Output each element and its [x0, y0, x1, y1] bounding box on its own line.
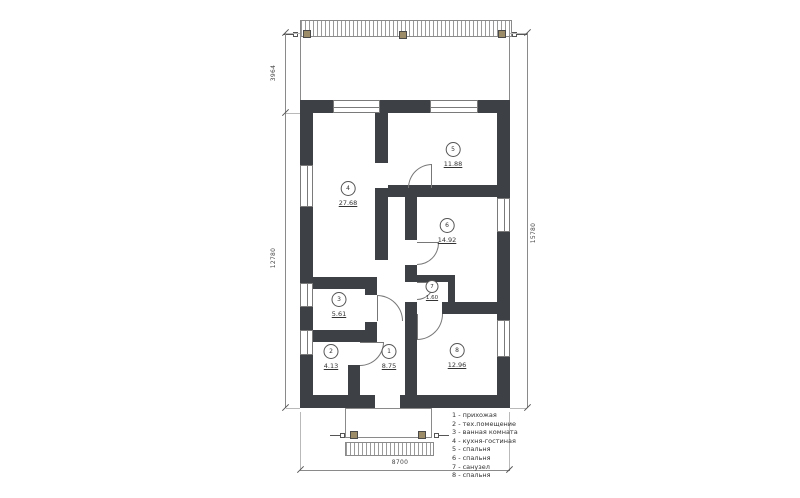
- dimension-label-house-length: 12780: [270, 242, 280, 274]
- interior-wall-segment: [388, 185, 497, 197]
- room-number: 2: [324, 344, 339, 359]
- window: [333, 100, 380, 113]
- exterior-wall-segment: [400, 395, 510, 408]
- room-label-4: 4 27.68: [339, 181, 358, 207]
- dimension-line: [527, 33, 528, 408]
- interior-wall-segment: [405, 314, 417, 395]
- legend-item: 3 - ванная комната: [452, 428, 518, 437]
- dimension-extension-line: [286, 408, 300, 409]
- dimension-label-terrace-depth: 3964: [270, 57, 280, 89]
- interior-wall-segment: [405, 302, 417, 314]
- window: [497, 198, 510, 232]
- window: [300, 330, 313, 355]
- door-leaf: [360, 342, 384, 343]
- legend-item: 1 - прихожая: [452, 411, 518, 420]
- window: [430, 100, 478, 113]
- interior-wall-segment: [348, 365, 360, 395]
- dimension-label-total-length: 15780: [530, 217, 540, 249]
- room-label-5: 5 11.88: [444, 142, 463, 168]
- door-leaf: [431, 164, 432, 188]
- porch-steps-hatch: [345, 442, 434, 456]
- room-label-7: 7 1.60: [426, 280, 439, 301]
- door-leaf: [417, 314, 418, 340]
- room-number: 3: [332, 292, 347, 307]
- pergola-post: [399, 31, 407, 39]
- dimension-extension-line: [286, 33, 300, 34]
- door-swing-arc: [377, 295, 403, 321]
- interior-wall-segment: [365, 289, 377, 295]
- room-label-2: 2 4.13: [324, 344, 339, 370]
- elevation-marker-icon: [330, 432, 346, 439]
- door-leaf: [417, 242, 439, 243]
- legend-item: 7 - санузел: [452, 463, 518, 472]
- interior-wall-segment: [405, 265, 417, 282]
- exterior-wall-segment: [300, 355, 313, 408]
- window: [300, 165, 313, 207]
- room-area: 27.68: [339, 199, 358, 207]
- porch-post: [350, 431, 358, 439]
- room-label-8: 8 12.96: [448, 343, 467, 369]
- room-label-6: 6 14.92: [438, 218, 457, 244]
- door-leaf: [377, 295, 378, 321]
- pergola-post: [498, 30, 506, 38]
- porch-post: [418, 431, 426, 439]
- interior-wall-segment: [375, 188, 388, 260]
- interior-wall-segment: [313, 277, 377, 289]
- room-area: 8.75: [382, 362, 397, 370]
- room-number: 5: [445, 142, 460, 157]
- dimension-line: [285, 113, 286, 408]
- interior-wall-segment: [375, 113, 388, 163]
- window: [497, 320, 510, 357]
- room-area: 12.96: [448, 361, 467, 369]
- legend-item: 8 - спальня: [452, 471, 518, 480]
- legend-item: 6 - спальня: [452, 454, 518, 463]
- dimension-line: [285, 33, 286, 113]
- exterior-wall-segment: [497, 100, 510, 198]
- legend: 1 - прихожая 2 - тех.помещение 3 - ванна…: [452, 411, 518, 480]
- door-swing-arc: [360, 342, 384, 366]
- room-area: 1.60: [426, 295, 439, 301]
- exterior-wall-segment: [300, 307, 313, 330]
- room-area: 14.92: [438, 236, 457, 244]
- room-label-1: 1 8.75: [382, 344, 397, 370]
- exterior-wall-segment: [380, 100, 430, 113]
- legend-item: 4 - кухня-гостиная: [452, 437, 518, 446]
- door-swing-arc: [417, 243, 439, 265]
- legend-item: 2 - тех.помещение: [452, 420, 518, 429]
- exterior-wall-segment: [300, 100, 313, 165]
- dimension-label-house-width: 8700: [378, 459, 422, 469]
- room-area: 5.61: [332, 310, 347, 318]
- interior-wall-segment: [313, 330, 377, 342]
- elevation-marker-icon: [434, 432, 450, 439]
- room-number: 6: [439, 218, 454, 233]
- terrace-edge-right: [509, 35, 510, 100]
- interior-wall-segment: [448, 275, 455, 302]
- dimension-extension-line: [286, 113, 300, 114]
- room-number: 4: [340, 181, 355, 196]
- interior-wall-segment: [442, 302, 497, 314]
- room-label-3: 3 5.61: [332, 292, 347, 318]
- dimension-tick: [524, 404, 531, 411]
- legend-item: 5 - спальня: [452, 445, 518, 454]
- pergola-post: [303, 30, 311, 38]
- exterior-wall-segment: [300, 207, 313, 283]
- room-area: 4.13: [324, 362, 339, 370]
- room-area: 11.88: [444, 160, 463, 168]
- interior-wall-segment: [405, 197, 417, 240]
- room-number: 1: [382, 344, 397, 359]
- dimension-extension-line: [300, 412, 301, 470]
- exterior-wall-segment: [497, 232, 510, 320]
- terrace-edge-left: [300, 35, 301, 100]
- exterior-wall-segment: [497, 357, 510, 408]
- window: [300, 283, 313, 307]
- door-swing-arc: [408, 164, 432, 188]
- room-number: 8: [449, 343, 464, 358]
- door-swing-arc: [417, 314, 443, 340]
- room-number: 7: [426, 280, 439, 293]
- floor-plan: 1 8.75 2 4.13 3 5.61 4 27.68 5 11.88 6 1…: [0, 0, 800, 498]
